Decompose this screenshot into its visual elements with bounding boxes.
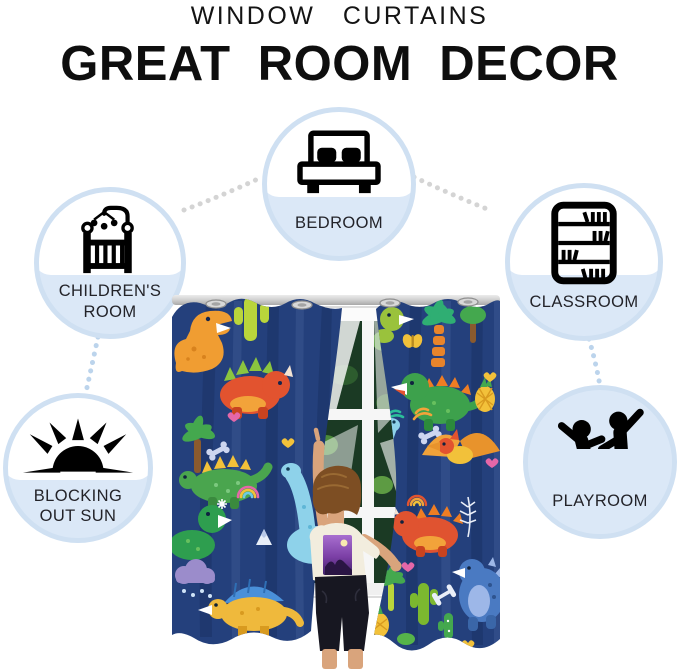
connector-children-bedroom [184, 177, 262, 210]
feature-label: CHILDREN'S ROOM [39, 281, 181, 321]
sparkle-motif [217, 499, 227, 509]
feature-bubble-playroom: PLAYROOM [523, 385, 677, 539]
child-leg [348, 649, 363, 669]
connector-classroom-playroom [589, 339, 600, 386]
child-leg [322, 649, 337, 669]
feature-bubble-childrens-room: CHILDREN'S ROOM [34, 187, 186, 339]
marketing-infographic: WINDOW CURTAINS GREAT ROOM DECOR BEDROOM [0, 0, 679, 669]
bookshelf-icon [541, 200, 627, 291]
feature-label: PLAYROOM [528, 491, 672, 511]
feature-label: BLOCKING OUT SUN [8, 486, 148, 526]
sun-icon [19, 416, 137, 487]
feature-bubble-blocking-out-sun: BLOCKING OUT SUN [3, 393, 153, 543]
bed-icon [289, 126, 389, 209]
crib-icon [64, 200, 156, 291]
feature-label: CLASSROOM [510, 292, 658, 312]
connector-bedroom-classroom [414, 177, 492, 211]
feature-bubble-classroom: CLASSROOM [505, 183, 663, 341]
child-hair [313, 466, 361, 515]
product-photo [172, 283, 500, 669]
child-shorts [315, 575, 369, 651]
connector-children-sun [86, 337, 98, 392]
feature-bubble-bedroom: BEDROOM [262, 107, 416, 261]
feature-label: BEDROOM [267, 213, 411, 233]
